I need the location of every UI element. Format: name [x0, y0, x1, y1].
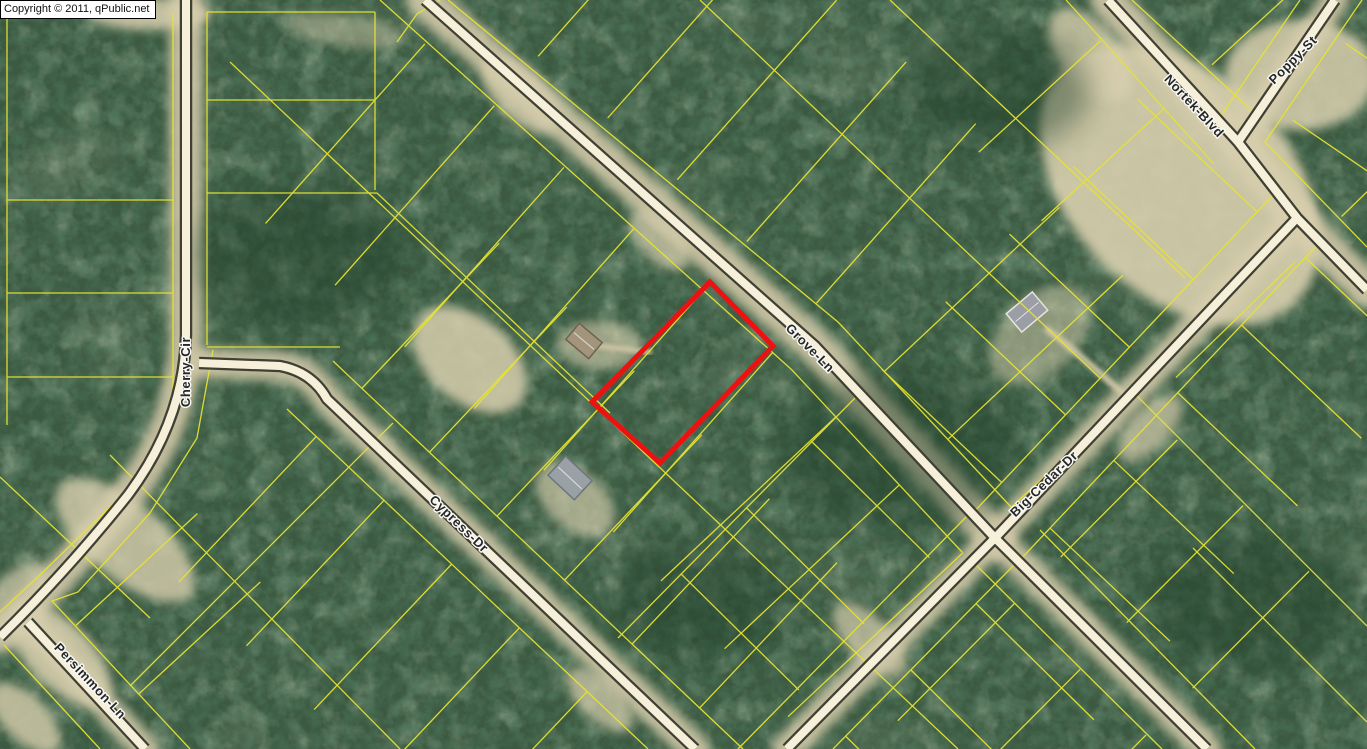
copyright-notice: Copyright © 2011, qPublic.net [0, 0, 156, 19]
dark-forest-patch [1150, 530, 1350, 670]
dark-forest-patch [780, 370, 1020, 530]
parcel-map[interactable]: Grove-LnCherry-CirCypress-DrBig-Cedar-Dr… [0, 0, 1367, 749]
dark-forest-patch [610, 540, 790, 660]
dark-forest-patch [195, 185, 405, 325]
map-viewport[interactable]: Grove-LnCherry-CirCypress-DrBig-Cedar-Dr… [0, 0, 1367, 749]
street-label-cherry-cir: Cherry-Cir [178, 337, 193, 407]
